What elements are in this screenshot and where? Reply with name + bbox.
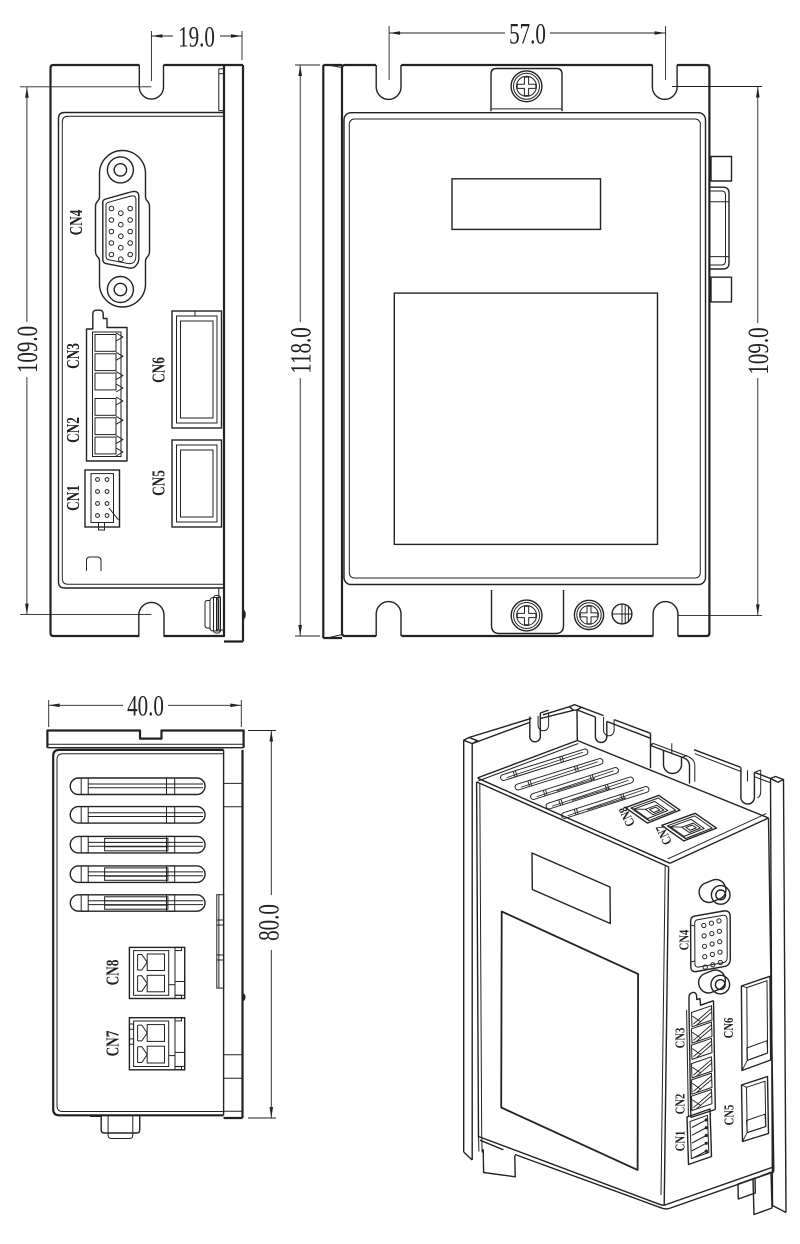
svg-text:CN8: CN8 bbox=[104, 959, 123, 985]
svg-text:CN1: CN1 bbox=[672, 1131, 688, 1152]
svg-text:109.0: 109.0 bbox=[10, 326, 44, 373]
svg-text:40.0: 40.0 bbox=[127, 689, 164, 723]
svg-text:57.0: 57.0 bbox=[509, 17, 546, 51]
svg-text:80.0: 80.0 bbox=[252, 904, 286, 941]
svg-text:CN1: CN1 bbox=[64, 485, 83, 511]
svg-text:CN4: CN4 bbox=[67, 209, 86, 235]
svg-text:109.0: 109.0 bbox=[741, 327, 775, 374]
svg-text:CN6: CN6 bbox=[150, 357, 169, 383]
svg-text:CN2: CN2 bbox=[64, 417, 83, 443]
svg-text:19.0: 19.0 bbox=[178, 20, 215, 54]
svg-text:CN2: CN2 bbox=[672, 1094, 688, 1115]
svg-text:CN4: CN4 bbox=[676, 930, 692, 951]
svg-text:CN7: CN7 bbox=[104, 1030, 123, 1056]
svg-text:118.0: 118.0 bbox=[284, 327, 318, 373]
svg-text:CN5: CN5 bbox=[721, 1105, 737, 1126]
svg-text:CN5: CN5 bbox=[150, 470, 169, 496]
svg-text:CN3: CN3 bbox=[672, 1028, 688, 1049]
svg-text:CN3: CN3 bbox=[64, 343, 83, 369]
svg-text:CN6: CN6 bbox=[721, 1018, 737, 1039]
